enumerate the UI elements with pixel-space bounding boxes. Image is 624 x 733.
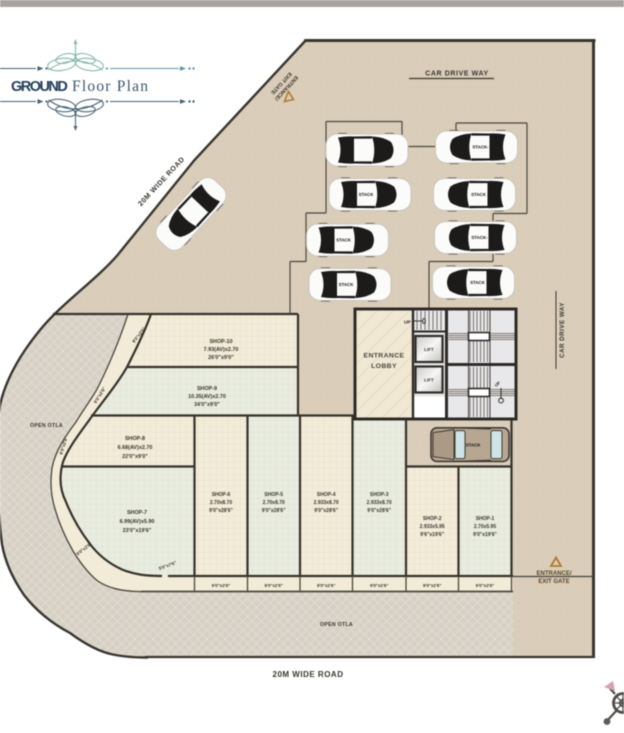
svg-text:SHOP-3: SHOP-3 <box>370 492 389 498</box>
svg-text:SHOP-1: SHOP-1 <box>476 516 495 522</box>
svg-text:9'0"x28'6": 9'0"x28'6" <box>209 508 233 514</box>
svg-text:9'6"x19'6": 9'6"x19'6" <box>420 532 444 538</box>
svg-text:SHOP-7: SHOP-7 <box>127 510 147 516</box>
svg-text:CAR DRIVE WAY: CAR DRIVE WAY <box>559 302 566 358</box>
svg-text:23'0"x19'6": 23'0"x19'6" <box>123 528 152 534</box>
svg-text:10.35(AV)x2.70: 10.35(AV)x2.70 <box>188 394 226 400</box>
svg-text:STACK: STACK <box>466 443 482 448</box>
svg-text:STACK: STACK <box>471 192 487 197</box>
svg-text:STACK: STACK <box>339 282 355 287</box>
svg-text:2.933x5.95: 2.933x5.95 <box>420 524 445 530</box>
svg-text:9'0"x2'6": 9'0"x2'6" <box>476 583 494 588</box>
svg-text:STACK: STACK <box>359 192 375 197</box>
svg-text:9'0"x2'6": 9'0"x2'6" <box>317 583 335 588</box>
svg-text:STACK: STACK <box>470 280 486 285</box>
svg-text:6.68(AV)x2.70: 6.68(AV)x2.70 <box>118 445 153 451</box>
svg-text:2.70x8.70: 2.70x8.70 <box>263 500 285 506</box>
svg-text:STACK-: STACK- <box>472 145 489 150</box>
svg-text:SHOP-9: SHOP-9 <box>197 386 217 392</box>
svg-text:UP: UP <box>404 320 411 326</box>
svg-text:7.93(AV)x2.70: 7.93(AV)x2.70 <box>204 347 239 353</box>
svg-text:LOBBY: LOBBY <box>371 363 397 370</box>
svg-text:9'0"x28'6": 9'0"x28'6" <box>262 508 286 514</box>
svg-text:LIFT: LIFT <box>424 378 434 383</box>
svg-text:STACK-: STACK- <box>471 235 488 240</box>
svg-text:OPEN OTLA: OPEN OTLA <box>320 622 353 628</box>
svg-text:20M WIDE ROAD: 20M WIDE ROAD <box>273 670 344 679</box>
svg-text:SHOP-5: SHOP-5 <box>264 492 283 498</box>
svg-text:34'0"x9'0": 34'0"x9'0" <box>194 402 220 408</box>
svg-text:9'0"x2'6": 9'0"x2'6" <box>212 583 230 588</box>
svg-text:2.933x8.70: 2.933x8.70 <box>367 500 392 506</box>
svg-text:2.70x5.95: 2.70x5.95 <box>474 524 496 530</box>
svg-text:OPEN OTLA: OPEN OTLA <box>30 423 63 429</box>
svg-text:2.933x8.70: 2.933x8.70 <box>314 500 339 506</box>
svg-text:GROUND: GROUND <box>11 79 68 95</box>
svg-text:SHOP-4: SHOP-4 <box>317 492 336 498</box>
svg-text:9'0"x2'6": 9'0"x2'6" <box>370 583 388 588</box>
svg-text:SHOP-2: SHOP-2 <box>423 516 442 522</box>
svg-text:SHOP-6: SHOP-6 <box>212 492 231 498</box>
svg-text:Floor Plan: Floor Plan <box>72 78 148 95</box>
svg-text:9'0"x2'6": 9'0"x2'6" <box>264 583 282 588</box>
svg-text:9'0"x19'6": 9'0"x19'6" <box>473 532 497 538</box>
svg-text:SHOP-10: SHOP-10 <box>209 339 232 345</box>
svg-text:9'0"x28'6": 9'0"x28'6" <box>367 508 391 514</box>
svg-text:9'0"x28'6": 9'0"x28'6" <box>314 508 338 514</box>
svg-text:ENTRANCE: ENTRANCE <box>364 353 405 360</box>
svg-text:2.70x8.70: 2.70x8.70 <box>210 500 232 506</box>
svg-text:SHOP-8: SHOP-8 <box>125 436 145 442</box>
svg-text:6.99(AV)x5.90: 6.99(AV)x5.90 <box>120 519 155 525</box>
svg-text:CAR DRIVE WAY: CAR DRIVE WAY <box>425 71 489 78</box>
svg-text:9'0"x2'6": 9'0"x2'6" <box>423 583 441 588</box>
svg-text:STACK: STACK <box>336 238 352 243</box>
svg-text:22'0"x9'0": 22'0"x9'0" <box>122 454 148 460</box>
svg-text:26'0"x9'0": 26'0"x9'0" <box>208 355 234 361</box>
svg-text:EXIT GATE: EXIT GATE <box>538 579 569 585</box>
svg-text:LIFT: LIFT <box>424 347 434 352</box>
